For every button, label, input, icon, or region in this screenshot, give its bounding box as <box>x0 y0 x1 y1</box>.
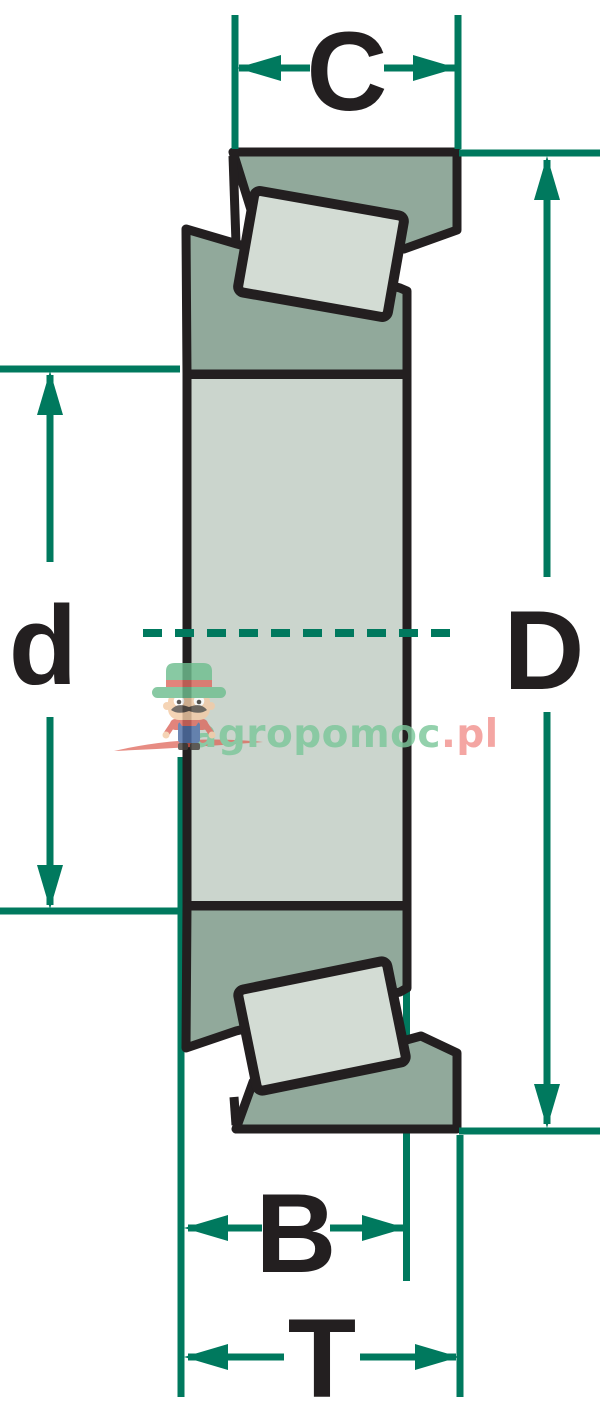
mascot-boot-left <box>178 743 188 750</box>
c-label: C <box>307 9 388 134</box>
d-outer-arrow-down-icon <box>534 1084 560 1128</box>
mascot-pupil-left <box>177 700 182 705</box>
t-arrow-left-icon <box>184 1344 228 1370</box>
mascot-hand-left <box>163 732 170 739</box>
d-outer-label: D <box>504 588 585 713</box>
c-arrow-right-icon <box>413 55 457 81</box>
outer-ring-cup-bottom-left-face <box>234 1097 236 1125</box>
bearing-dimension-diagram: C D d B T agropomoc. <box>0 0 600 1423</box>
mascot-pupil-right <box>197 700 202 705</box>
b-label: B <box>256 1171 337 1296</box>
bearing-cross-section <box>186 152 457 1129</box>
mascot-hat-band <box>166 680 212 687</box>
d-bore-label: d <box>9 583 77 708</box>
t-arrow-right-icon <box>415 1344 459 1370</box>
dimension-B: B <box>184 1171 406 1296</box>
d-bore-arrow-down-icon <box>37 865 63 909</box>
dimension-d: d <box>0 369 180 911</box>
mascot-hand-right <box>209 732 216 739</box>
watermark-brand-pink: .pl <box>441 712 499 757</box>
b-arrow-right-icon <box>362 1215 406 1241</box>
dimension-D: D <box>459 153 600 1131</box>
outer-ring-cup-top-left-face <box>233 156 236 243</box>
c-arrow-left-icon <box>237 55 281 81</box>
diagram-canvas: C D d B T agropomoc. <box>0 0 600 1423</box>
b-arrow-left-icon <box>184 1215 228 1241</box>
watermark-brand-green: agropomoc <box>191 712 441 757</box>
dimension-C: C <box>235 9 458 149</box>
mascot-hat-brim <box>152 687 226 698</box>
mascot-boot-right <box>190 743 200 750</box>
d-bore-arrow-up-icon <box>37 371 63 415</box>
t-label: T <box>288 1296 356 1421</box>
watermark-brand-text: agropomoc.pl <box>191 712 499 757</box>
d-outer-arrow-up-icon <box>534 156 560 200</box>
inner-ring-body <box>187 375 407 906</box>
tapered-roller-top <box>237 190 405 318</box>
